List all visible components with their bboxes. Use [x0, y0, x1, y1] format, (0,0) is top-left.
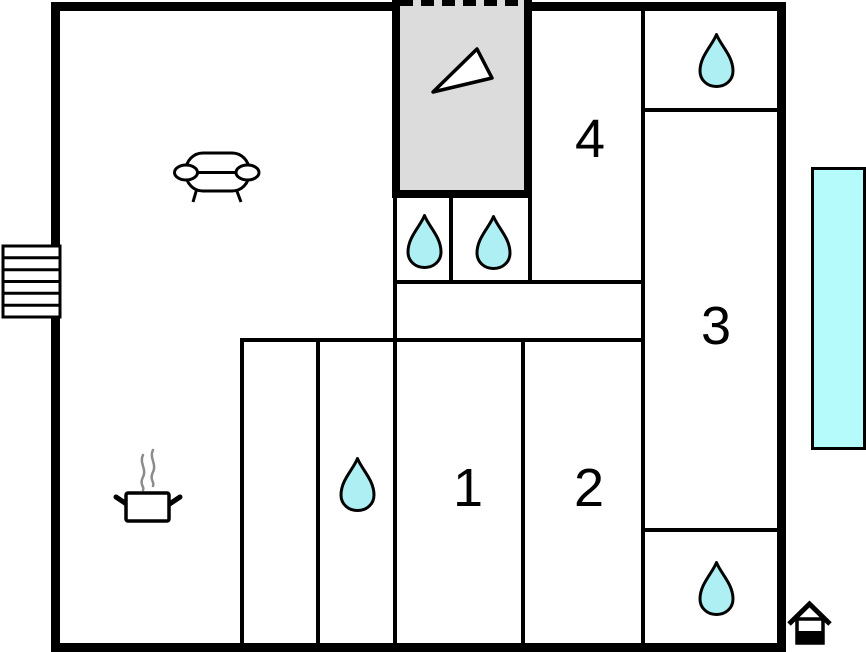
steam-line	[142, 455, 145, 490]
cooking-pot-icon	[108, 440, 188, 530]
room-label-2: 2	[574, 461, 604, 515]
water-drop-icon	[339, 456, 376, 513]
wall-toilet-divider	[449, 198, 453, 284]
wall-storage-right	[316, 341, 320, 643]
room-label-3: 3	[701, 299, 731, 353]
wall-outer-bottom	[51, 643, 786, 652]
room-label-1: 1	[453, 461, 483, 515]
wall-toilet-left	[393, 198, 397, 643]
wall-right-column	[641, 11, 645, 643]
wall-room3-bottom	[645, 528, 777, 532]
house-icon	[786, 600, 834, 646]
terrace	[811, 167, 866, 450]
wall-hallway-top	[393, 280, 645, 284]
steam-line	[152, 450, 155, 486]
wall-outer-left	[51, 2, 60, 652]
entrance-arrow-icon	[400, 0, 524, 198]
wall-toilet-right	[528, 198, 532, 284]
water-drop-icon	[698, 32, 735, 89]
floor-plan: 1 2 3 4	[0, 0, 866, 652]
wall-outer-top-right	[528, 2, 786, 11]
room-label-4: 4	[575, 112, 605, 166]
water-drop-icon	[406, 213, 443, 270]
sofa-icon	[172, 146, 262, 206]
water-drop-icon	[475, 214, 512, 271]
entrance-area	[392, 0, 532, 198]
wall-storage-left	[240, 338, 244, 643]
wall-outer-top-left	[51, 2, 398, 11]
wall-room1-room2	[521, 341, 525, 643]
water-drop-icon	[698, 560, 735, 617]
stairs-icon	[1, 244, 61, 319]
wall-bath-top-right-bottom	[645, 108, 777, 112]
wall-outer-right	[777, 2, 786, 652]
wall-hallway-bottom	[240, 338, 645, 342]
